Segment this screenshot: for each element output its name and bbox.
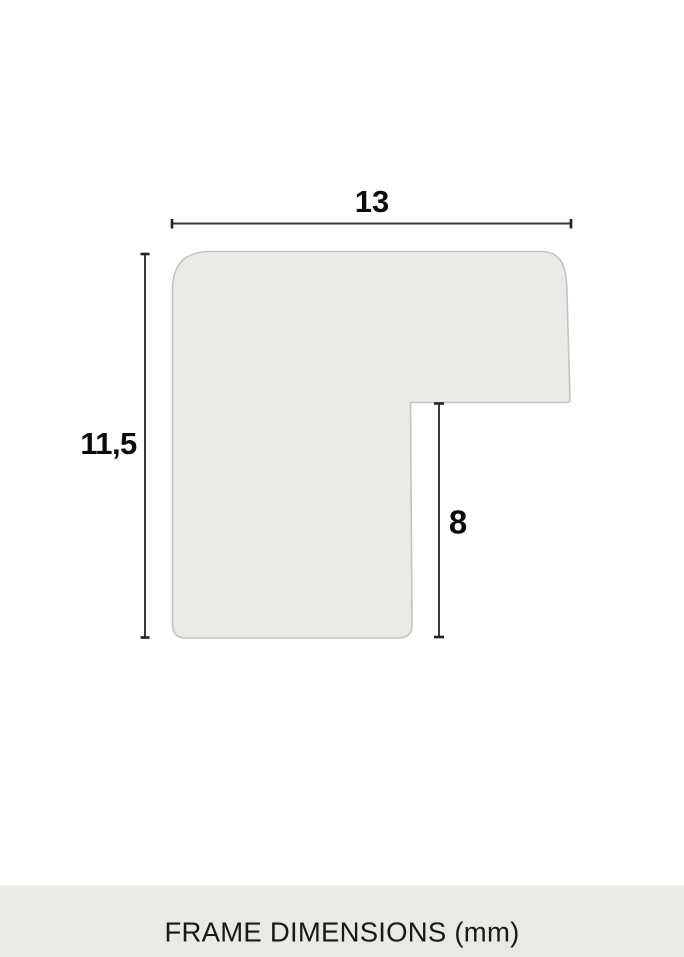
svg-text:13: 13	[355, 184, 389, 219]
svg-text:8: 8	[449, 504, 467, 541]
svg-text:FRAME DIMENSIONS (mm): FRAME DIMENSIONS (mm)	[164, 917, 519, 948]
svg-text:11,5: 11,5	[80, 426, 137, 461]
